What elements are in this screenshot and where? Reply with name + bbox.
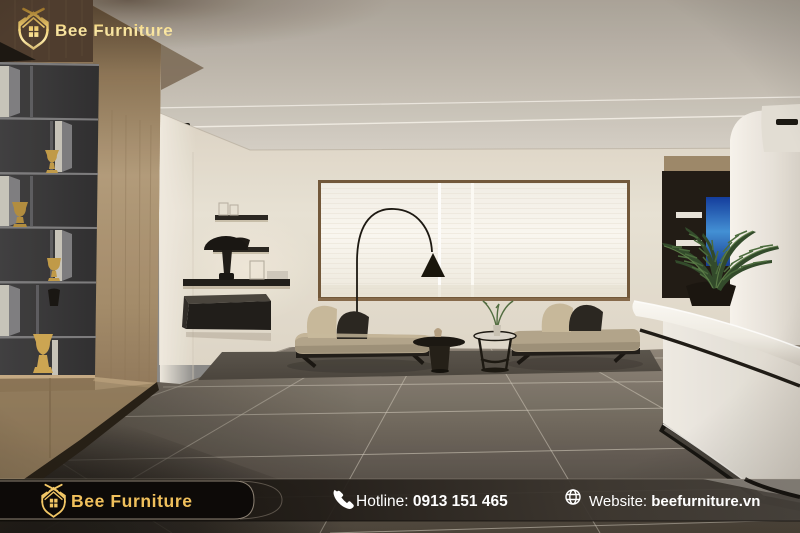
svg-text:Hotline: 0913 151 465: Hotline: 0913 151 465 [356,493,508,510]
svg-text:Bee Furniture: Bee Furniture [55,21,173,40]
svg-text:Bee Furniture: Bee Furniture [71,491,193,511]
svg-text:Website: beefurniture.vn: Website: beefurniture.vn [589,493,760,510]
